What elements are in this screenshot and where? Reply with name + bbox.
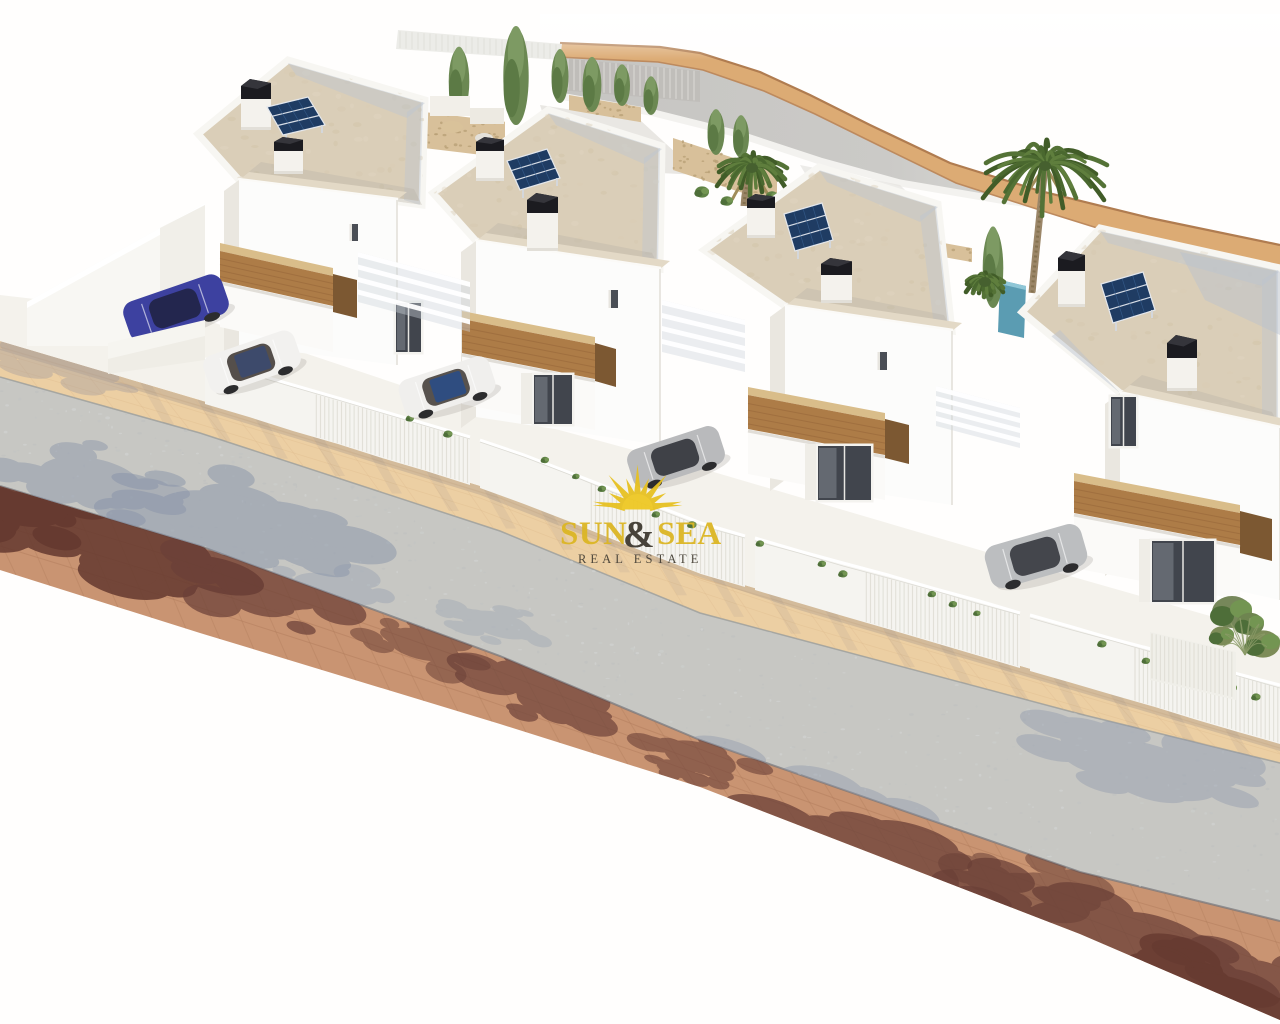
svg-text:SUN: SUN	[560, 516, 628, 552]
svg-text:&: &	[623, 514, 655, 556]
svg-text:REAL ESTATE: REAL ESTATE	[578, 552, 703, 566]
svg-text:SEA: SEA	[657, 516, 721, 552]
